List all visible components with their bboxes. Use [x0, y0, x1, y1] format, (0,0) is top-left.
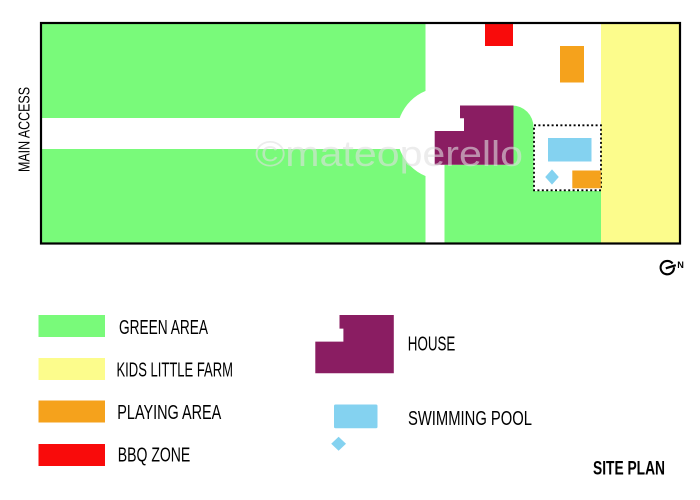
- svg-text:BBQ ZONE: BBQ ZONE: [118, 445, 191, 467]
- svg-text:N: N: [677, 260, 684, 270]
- svg-text:PLAYING AREA: PLAYING AREA: [117, 402, 221, 424]
- svg-text:SITE PLAN: SITE PLAN: [593, 458, 665, 480]
- svg-text:MAIN ACCESS: MAIN ACCESS: [17, 87, 34, 172]
- svg-text:HOUSE: HOUSE: [408, 334, 456, 356]
- svg-text:GREEN AREA: GREEN AREA: [119, 317, 208, 339]
- svg-text:©mateoperello: ©mateoperello: [255, 133, 523, 174]
- svg-text:KIDS LITTLE FARM: KIDS LITTLE FARM: [117, 359, 234, 381]
- svg-text:SWIMMING POOL: SWIMMING POOL: [408, 408, 532, 430]
